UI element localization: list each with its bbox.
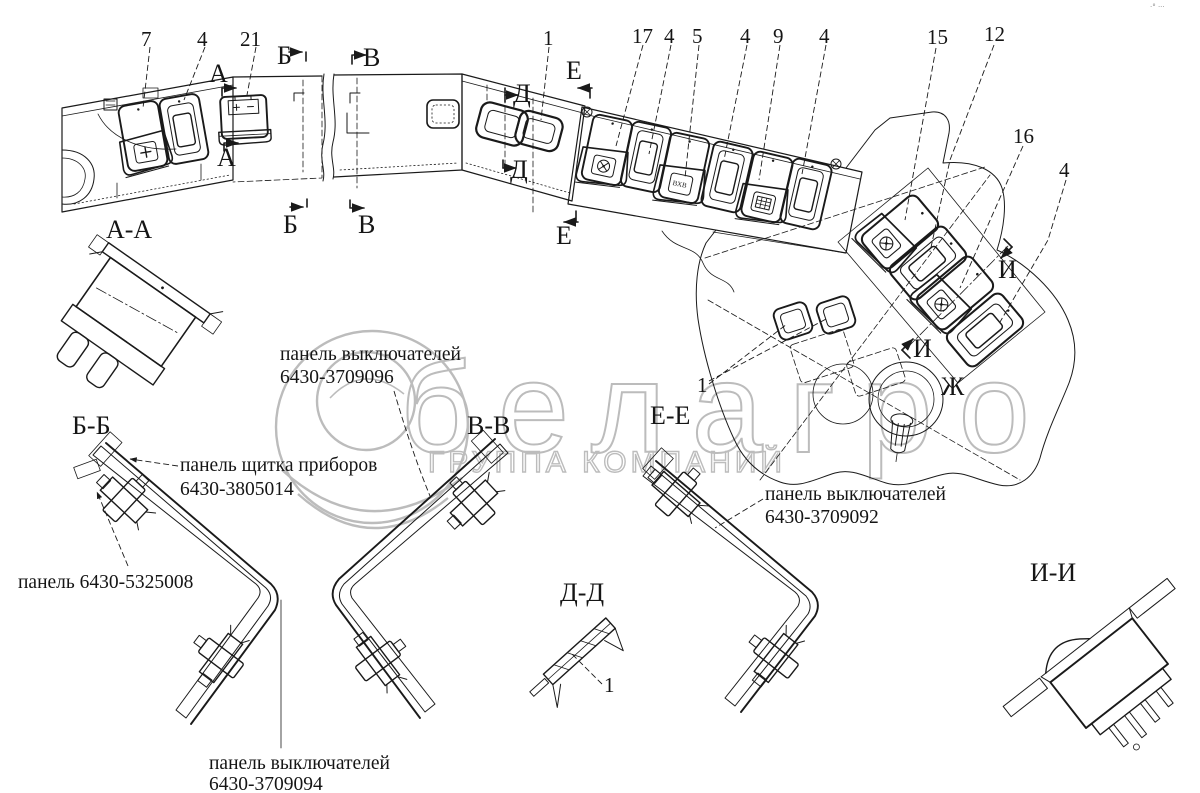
section-mark-e-top: Е [566,56,582,85]
screw-icon [831,159,841,169]
plus-icon [140,146,152,158]
callout-5: 5 [692,24,703,48]
section-mark-a-bottom: А [217,143,236,172]
part-label-3709094-line2: 6430-3709094 [209,774,323,793]
switch-16-fan [906,249,1000,340]
callout-4-mid1: 4 [664,24,675,48]
parts-diagram: белагро ГРУППА КОМПАНИЙ ·° ··· [0,0,1200,793]
callout-15: 15 [927,25,948,49]
callout-21: 21 [240,27,261,51]
section-cut-marks [222,52,1012,358]
fan-icon [877,234,895,252]
switch-panel-e: ВХВ [568,107,862,292]
callout-16: 16 [1013,124,1034,148]
part-label-3805014-line1: панель щитка приборов [180,455,377,476]
fan-icon [596,159,610,173]
section-title-aa: А-А [106,215,152,244]
section-mark-b-bottom: Б [283,210,298,239]
part-label-3709096-line2: 6430-3709096 [280,367,394,388]
part-label-3709096-line1: панель выключателей [280,344,461,365]
heater-icon: ВХВ [672,179,688,190]
callout-4-right: 4 [1059,158,1070,182]
corner-mark: ·° ··· [1150,3,1165,11]
callout-4-left: 4 [197,27,208,51]
item-21-switch [217,95,271,146]
switch-fastener [732,614,813,697]
top-panel-strip: ВХВ [62,74,862,292]
callout-4-mid3: 4 [819,24,830,48]
panel-segment-v [334,74,462,177]
switch-fastener [177,614,258,697]
section-mark-e-bottom: Е [556,221,572,250]
section-mark-v-top: В [363,43,380,72]
console-hole-2 [815,295,857,336]
section-title-bb: Б-Б [72,411,111,440]
section-title-ii: И-И [1030,558,1076,587]
section-mark-d-bottom: Д [510,155,528,184]
view-mark-zh: Ж [941,372,965,401]
panel-segment-left [62,77,233,212]
callout-1-console: 1 [697,373,708,397]
part-label-3805014-line2: 6430-3805014 [180,479,294,500]
section-ii-drawing [995,568,1200,793]
panel-segment-a [217,74,360,182]
part-label-3709094-line1: панель выключателей [209,753,390,774]
section-title-ee: Е-Е [650,401,690,430]
section-mark-d-top: Д [513,79,531,108]
callout-17: 17 [632,24,653,48]
console-hole-1 [772,301,814,342]
fan-icon [932,295,950,313]
diagram-page: белагро ГРУППА КОМПАНИЙ ·° ··· [0,0,1200,793]
callout-12: 12 [984,22,1005,46]
section-mark-i-lower: И [913,334,932,363]
section-mark-b-top: Б [277,41,292,70]
callout-7: 7 [141,27,152,51]
callout-4-mid2: 4 [740,24,751,48]
section-dd-drawing [527,618,630,716]
hole-d-2 [513,109,564,153]
section-aa-drawing [25,227,226,424]
vent-grid-icon [755,196,771,210]
part-label-3709092-line2: 6430-3709092 [765,507,879,528]
section-mark-a-top: А [209,59,228,88]
callout-9: 9 [773,24,784,48]
section-title-dd: Д-Д [560,578,604,607]
callout-1-top: 1 [543,26,554,50]
part-label-3709092-line1: панель выключателей [765,484,946,505]
section-mark-i-upper: И [998,255,1017,284]
callout-1-dd: 1 [604,673,615,697]
section-mark-v-bottom: В [358,210,375,239]
part-label-5325008: панель 6430-5325008 [18,572,193,593]
section-title-vv: В-В [467,411,510,440]
